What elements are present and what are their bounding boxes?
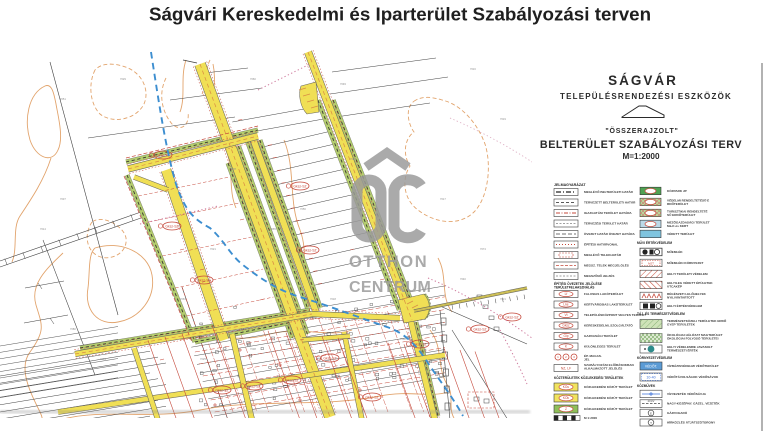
svg-text:Vt: Vt	[564, 313, 567, 317]
svg-text:Gip: Gip	[564, 334, 569, 338]
svg-text:7063: 7063	[180, 297, 186, 301]
svg-text:7080: 7080	[70, 327, 76, 331]
svg-text:KÜLÖNLEGES TERÜLET: KÜLÖNLEGES TERÜLET	[584, 345, 621, 349]
svg-text:TERMÉSZETI ÉRTÉK: TERMÉSZETI ÉRTÉK	[667, 348, 699, 353]
svg-text:7016: 7016	[470, 67, 476, 71]
svg-text:KÖZTERÜLETEK KÖZLEKEDÉSI TERÜL: KÖZTERÜLETEK KÖZLEKEDÉSI TERÜLETEK	[554, 375, 624, 380]
svg-text:7021: 7021	[210, 247, 216, 251]
svg-text:20 kV: 20 kV	[648, 399, 655, 403]
svg-text:7074: 7074	[480, 247, 486, 251]
svg-text:Má-K és KERT: Má-K és KERT	[667, 224, 688, 228]
svg-text:SÁGVÁR: SÁGVÁR	[608, 73, 678, 88]
svg-text:NZ, LF: NZ, LF	[561, 366, 571, 370]
svg-text:Gksz-SZ: Gksz-SZ	[303, 248, 316, 252]
svg-text:7093: 7093	[340, 82, 346, 86]
svg-text:TERVEZETT BELTERÜLETI HATÁR: TERVEZETT BELTERÜLETI HATÁR	[584, 200, 636, 205]
svg-text:MEGLÉVŐ TELEKHATÁR: MEGLÉVŐ TELEKHATÁR	[584, 252, 622, 257]
svg-text:KÖk: KÖk	[563, 396, 570, 400]
svg-text:TELEPÜLÉSRENDEZÉSI ESZKÖZÖK: TELEPÜLÉSRENDEZÉSI ESZKÖZÖK	[560, 92, 732, 101]
svg-text:KÖZLEKEDÉSI KÖZÚT TERÜLET: KÖZLEKEDÉSI KÖZÚT TERÜLET	[584, 395, 633, 400]
svg-text:TÁJ- ÉS TERMÉSZETVÉDELEM: TÁJ- ÉS TERMÉSZETVÉDELEM	[637, 311, 685, 316]
svg-text:VÉDETT TERÜLET: VÉDETT TERÜLET	[667, 231, 694, 236]
svg-text:VÍZVEZETÉK VÉDŐSÁVJA: VÍZVEZETÉK VÉDŐSÁVJA	[667, 391, 707, 396]
svg-text:T: T	[650, 421, 652, 425]
svg-text:GYEP TERÜLETEK: GYEP TERÜLETEK	[667, 323, 696, 327]
svg-text:JELMAGYARÁZAT: JELMAGYARÁZAT	[554, 182, 586, 187]
svg-text:HELYI ÉRTÉKVÉDELEM: HELYI ÉRTÉKVÉDELEM	[667, 303, 703, 308]
svg-text:7065: 7065	[270, 227, 276, 231]
svg-text:Gksz-SZ: Gksz-SZ	[215, 388, 228, 392]
svg-text:7025: 7025	[200, 357, 206, 361]
svg-text:VÉDŐT.: VÉDŐT.	[645, 364, 657, 369]
svg-text:GÁZFOGADÓ: GÁZFOGADÓ	[667, 410, 688, 415]
svg-text:Lf: Lf	[565, 292, 568, 296]
svg-text:Gksz-SZ: Gksz-SZ	[165, 224, 178, 228]
svg-text:Gksz-SZ: Gksz-SZ	[365, 395, 378, 399]
svg-text:Gksz-SZ: Gksz-SZ	[473, 327, 486, 331]
svg-text:FALUSIAS LAKÓTERÜLET: FALUSIAS LAKÓTERÜLET	[584, 291, 623, 296]
svg-text:Gksz-SZ: Gksz-SZ	[323, 356, 336, 360]
svg-text:7018: 7018	[330, 297, 336, 301]
svg-text:Gksz: Gksz	[562, 324, 570, 328]
svg-text:7017: 7017	[440, 197, 446, 201]
svg-text:7056: 7056	[300, 207, 306, 211]
svg-text:KERESKEDELMI, SZOLGÁLTATÓ: KERESKEDELMI, SZOLGÁLTATÓ	[584, 323, 633, 328]
svg-text:Lke: Lke	[563, 303, 568, 307]
svg-text:7019: 7019	[500, 117, 506, 121]
svg-text:TERVEZÉSI TERÜLET HATÁR: TERVEZÉSI TERÜLET HATÁR	[584, 221, 628, 226]
svg-text:7014: 7014	[40, 227, 46, 231]
svg-text:Gksz-SZ: Gksz-SZ	[285, 378, 298, 382]
svg-text:NYILVÁNTARTOTT: NYILVÁNTARTOTT	[667, 295, 695, 300]
svg-text:7038: 7038	[250, 347, 256, 351]
svg-text:M=1:2000: M=1:2000	[622, 152, 660, 161]
svg-text:Gksz-SZ: Gksz-SZ	[293, 184, 306, 188]
svg-text:MŰVI ÉRTÉKVÉDELEM: MŰVI ÉRTÉKVÉDELEM	[637, 240, 672, 245]
svg-text:ÖKOLÓGIAI FOLYOSÓ TERÜLETEI: ÖKOLÓGIAI FOLYOSÓ TERÜLETEI	[667, 336, 719, 341]
svg-text:IGAZGATÁSI TERÜLET HATÁRA: IGAZGATÁSI TERÜLET HATÁRA	[584, 210, 632, 215]
svg-text:MEGSZŰNŐ JELZÉS: MEGSZŰNŐ JELZÉS	[584, 273, 614, 278]
svg-text:7078: 7078	[230, 167, 236, 171]
svg-text:7082: 7082	[400, 337, 406, 341]
svg-text:Gksz-SZ: Gksz-SZ	[197, 278, 210, 282]
svg-text:7060: 7060	[250, 77, 256, 81]
svg-text:MJT: MJT	[648, 262, 654, 266]
svg-text:7037: 7037	[60, 197, 66, 201]
svg-text:KÖZPARK JP: KÖZPARK JP	[667, 189, 687, 193]
svg-text:KERTVÁROSIAS LAKÓTERÜLET: KERTVÁROSIAS LAKÓTERÜLET	[584, 302, 633, 307]
svg-text:7017: 7017	[300, 327, 306, 331]
svg-text:7051: 7051	[60, 97, 66, 101]
svg-text:HELYI TERÜLETI VÉDELEM: HELYI TERÜLETI VÉDELEM	[667, 271, 708, 276]
svg-text:BELTERÜLET SZABÁLYOZÁSI TERV: BELTERÜLET SZABÁLYOZÁSI TERV	[540, 138, 742, 151]
svg-text:ÖVEZET HATÁR ÖVEZET HATÁRA: ÖVEZET HATÁR ÖVEZET HATÁRA	[584, 231, 636, 236]
svg-text:7022: 7022	[350, 157, 356, 161]
svg-text:RDŐTERÜLET: RDŐTERÜLET	[667, 201, 688, 206]
svg-text:OTTHON: OTTHON	[349, 253, 428, 271]
svg-text:ÉPÍTÉSI HATÁRVONAL: ÉPÍTÉSI HATÁRVONAL	[584, 242, 618, 247]
svg-text:E: E	[650, 411, 652, 415]
svg-text:SŰ ERDŐTERÜLET: SŰ ERDŐTERÜLET	[667, 212, 695, 217]
svg-text:KÖZLEKEDÉSI KÖZÚT TERÜLET: KÖZLEKEDÉSI KÖZÚT TERÜLET	[584, 406, 633, 411]
svg-text:VÍZBÁZISVÉDELMI VÉDŐTERÜLET: VÍZBÁZISVÉDELMI VÉDŐTERÜLET	[667, 363, 719, 368]
svg-text:KÖZMŰVEK: KÖZMŰVEK	[637, 383, 656, 388]
svg-text:10-40: 10-40	[646, 376, 655, 380]
svg-text:Gksz-SZ: Gksz-SZ	[505, 315, 518, 319]
svg-text:Ságvári Kereskedelmi és Iparte: Ságvári Kereskedelmi és Iparterület Szab…	[149, 4, 651, 25]
svg-text:JEL: JEL	[584, 358, 590, 362]
svg-text:MEGLÉVŐ BELTERÜLETI HATÁR: MEGLÉVŐ BELTERÜLETI HATÁR	[584, 189, 634, 194]
svg-text:ALKALMAZOTT JELÖLÉS: ALKALMAZOTT JELÖLÉS	[584, 366, 622, 371]
svg-text:UTCAKÉP: UTCAKÉP	[667, 284, 682, 289]
svg-text:7064: 7064	[100, 357, 106, 361]
svg-text:NAGY-KÖZÉPNY. GÁZEL. VEZETÉK: NAGY-KÖZÉPNY. GÁZEL. VEZETÉK	[667, 401, 720, 406]
svg-text:"ÖSSZERAJZOLT": "ÖSSZERAJZOLT"	[605, 126, 678, 135]
svg-text:MEGSZ. TELEK MEGJELÖLÉS: MEGSZ. TELEK MEGJELÖLÉS	[584, 263, 629, 268]
svg-text:Z: Z	[565, 407, 567, 411]
svg-text:TERÜLETFELHASZNÁLÁS: TERÜLETFELHASZNÁLÁS	[554, 285, 594, 290]
svg-text:KÖZLEKEDÉSI KÖZÚT TERÜLET: KÖZLEKEDÉSI KÖZÚT TERÜLET	[584, 384, 633, 389]
svg-text:M 1:2000: M 1:2000	[584, 416, 597, 420]
svg-text:7021: 7021	[500, 297, 506, 301]
svg-text:MŰEMLÉK: MŰEMLÉK	[667, 249, 683, 254]
svg-text:Gksz-SZ: Gksz-SZ	[247, 384, 260, 388]
svg-text:7040: 7040	[460, 277, 466, 281]
svg-text:MŰEMLÉKI KÖRNYEZET: MŰEMLÉKI KÖRNYEZET	[667, 260, 704, 265]
svg-text:VÉDŐTÁVOLSÁGOK VÉDŐSÁVOK: VÉDŐTÁVOLSÁGOK VÉDŐSÁVOK	[667, 374, 719, 379]
svg-text:KÖu: KÖu	[563, 385, 570, 389]
svg-text:GAZDASÁGI TERÜLET: GAZDASÁGI TERÜLET	[584, 333, 618, 338]
svg-text:HÍRKÖZLÉS ÁTJÁTSZÓTORONY: HÍRKÖZLÉS ÁTJÁTSZÓTORONY	[667, 420, 716, 425]
svg-text:7029: 7029	[120, 77, 126, 81]
svg-text:KÖRNYEZETVÉDELEM: KÖRNYEZETVÉDELEM	[637, 355, 672, 360]
svg-text:CENTRUM: CENTRUM	[349, 279, 431, 296]
